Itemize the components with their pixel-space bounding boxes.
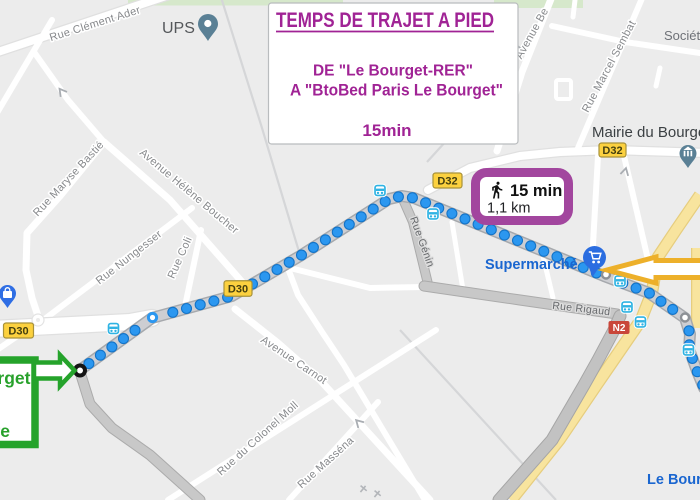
svg-text:Le Bourget: Le Bourget (0, 368, 31, 388)
svg-text:Supermarché: Supermarché (485, 257, 578, 273)
svg-text:TEMPS DE TRAJET A PIED: TEMPS DE TRAJET A PIED (276, 8, 494, 32)
svg-text:Société: Société (664, 28, 700, 43)
svg-text:UPS: UPS (162, 20, 195, 37)
svg-text:DE "Le Bourget-RER": DE "Le Bourget-RER" (313, 63, 473, 80)
svg-text:D30: D30 (8, 325, 28, 337)
svg-text:1,1 km: 1,1 km (487, 201, 531, 217)
svg-text:Le Bourget: Le Bourget (647, 472, 700, 488)
svg-text:15 min: 15 min (510, 182, 562, 200)
svg-text:N2: N2 (613, 323, 626, 334)
svg-text:A "BtoBed Paris Le Bourget": A "BtoBed Paris Le Bourget" (290, 82, 503, 100)
svg-text:D32: D32 (602, 145, 622, 157)
svg-text:D32: D32 (437, 175, 457, 187)
svg-text:Gare: Gare (0, 421, 10, 441)
svg-text:Mairie du Bourget: Mairie du Bourget (592, 124, 700, 141)
svg-text:15min: 15min (362, 121, 411, 140)
svg-text:D30: D30 (228, 283, 248, 295)
